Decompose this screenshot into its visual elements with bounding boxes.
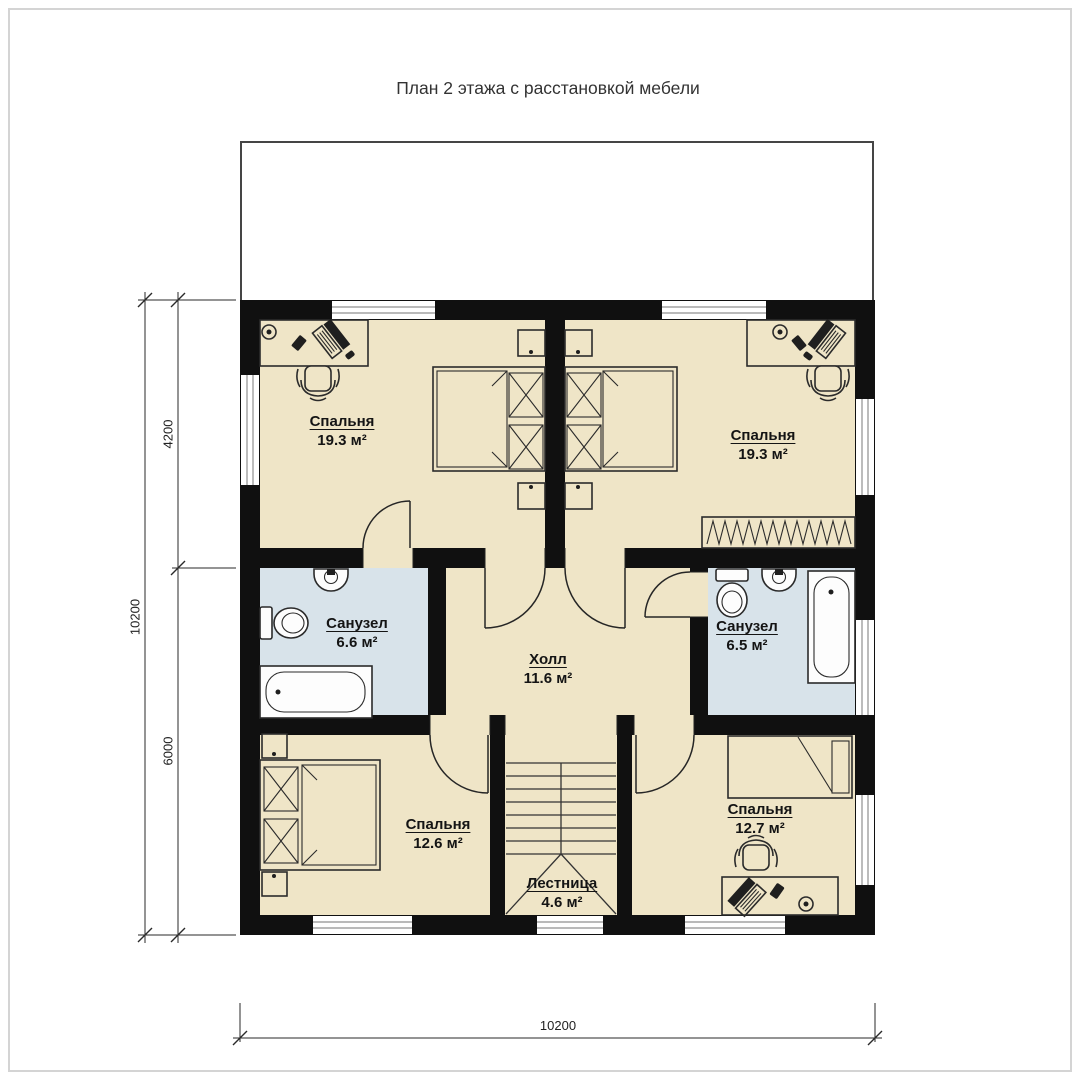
desk [260, 320, 368, 366]
room-label-bedroom-top-left: Спальня 19.3 м² [310, 412, 375, 450]
nightstand [262, 734, 287, 758]
room-label-bathroom-right: Санузел 6.5 м² [716, 617, 778, 655]
dimension-bottom-total: 10200 [540, 1018, 576, 1033]
double-bed [565, 367, 677, 471]
room-label-bathroom-left: Санузел 6.6 м² [326, 614, 388, 652]
wardrobe [702, 517, 855, 548]
dimension-left-upper: 4200 [161, 420, 176, 449]
bathtub [260, 666, 372, 718]
single-bed [728, 736, 852, 798]
dimension-left-total: 10200 [128, 599, 143, 635]
toilet [716, 569, 748, 617]
double-bed [433, 367, 545, 471]
nightstand [565, 330, 592, 356]
room-label-bedroom-bottom-left: Спальня 12.6 м² [406, 815, 471, 853]
double-bed [260, 760, 380, 870]
bathtub [808, 571, 855, 683]
nightstand [565, 483, 592, 509]
floor-plan-drawing [0, 0, 1080, 1080]
room-label-bedroom-bottom-right: Спальня 12.7 м² [728, 800, 793, 838]
nightstand [262, 872, 287, 896]
room-label-staircase: Лестница 4.6 м² [527, 874, 597, 912]
roof-outline [241, 142, 873, 310]
room-label-hall: Холл 11.6 м² [524, 650, 573, 688]
room-label-bedroom-top-right: Спальня 19.3 м² [731, 426, 796, 464]
plan-title: План 2 этажа с расстановкой мебели [396, 78, 700, 99]
nightstand [518, 330, 545, 356]
dimension-left-lower: 6000 [161, 737, 176, 766]
nightstand [518, 483, 545, 509]
toilet [260, 607, 308, 639]
